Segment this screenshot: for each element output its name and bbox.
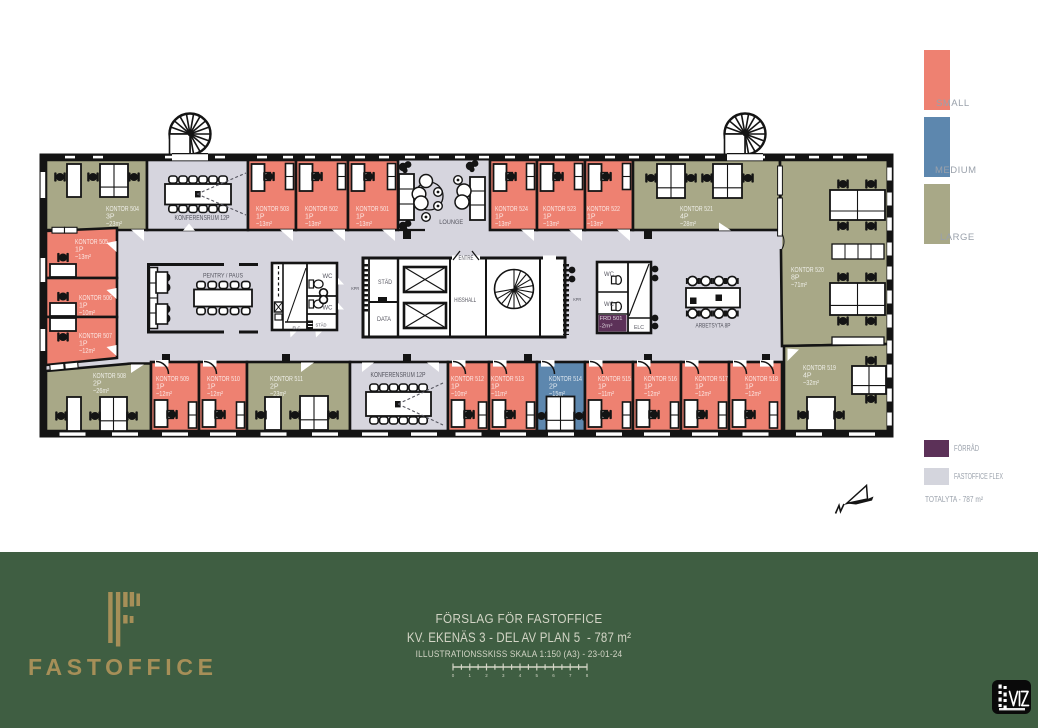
svg-text:~11m²: ~11m² <box>598 391 615 398</box>
svg-text:1P: 1P <box>156 384 165 391</box>
svg-text:KONTOR 517: KONTOR 517 <box>695 376 728 383</box>
svg-text:-2m²: -2m² <box>600 324 613 330</box>
svg-text:KONTOR 524: KONTOR 524 <box>495 206 528 213</box>
svg-text:LARGE: LARGE <box>940 232 975 243</box>
svg-text:KONTOR 512: KONTOR 512 <box>451 376 484 383</box>
svg-text:3: 3 <box>502 673 505 678</box>
svg-text:2P: 2P <box>270 384 279 391</box>
svg-text:~12m²: ~12m² <box>745 391 762 398</box>
svg-text:LOUNGE: LOUNGE <box>439 219 463 226</box>
svg-text:KONTOR 504: KONTOR 504 <box>106 206 139 213</box>
svg-text:~15m²: ~15m² <box>549 391 566 398</box>
svg-text:2: 2 <box>485 673 488 678</box>
svg-text:KONTOR 508: KONTOR 508 <box>93 373 126 380</box>
svg-text:KONTOR 507: KONTOR 507 <box>79 333 112 340</box>
svg-text:KONTOR 521: KONTOR 521 <box>680 206 713 213</box>
svg-text:KONFERENSRUM 12P: KONFERENSRUM 12P <box>175 215 230 222</box>
svg-text:STÄD: STÄD <box>378 279 393 286</box>
svg-text:KPR: KPR <box>351 286 359 292</box>
svg-text:KONTOR 510: KONTOR 510 <box>207 376 240 383</box>
svg-text:KONTOR 503: KONTOR 503 <box>256 206 289 213</box>
svg-text:ELC: ELC <box>634 325 644 331</box>
svg-text:1P: 1P <box>491 384 500 391</box>
svg-text:FRD 501: FRD 501 <box>600 316 623 322</box>
svg-text:~12m²: ~12m² <box>156 391 173 398</box>
svg-text:~12m²: ~12m² <box>207 391 224 398</box>
svg-text:WC: WC <box>604 302 615 308</box>
svg-text:1P: 1P <box>598 384 607 391</box>
svg-text:~12m²: ~12m² <box>79 348 96 355</box>
svg-text:0: 0 <box>452 673 455 678</box>
svg-text:KONTOR 523: KONTOR 523 <box>543 206 576 213</box>
svg-text:KONTOR 511: KONTOR 511 <box>270 376 303 383</box>
svg-text:TOTALYTA - 787 m²: TOTALYTA - 787 m² <box>925 495 983 504</box>
svg-text:KONTOR 513: KONTOR 513 <box>491 376 524 383</box>
svg-text:~23m²: ~23m² <box>106 221 123 228</box>
svg-text:1P: 1P <box>207 384 216 391</box>
svg-text:KONTOR 522: KONTOR 522 <box>587 206 620 213</box>
svg-text:~23m²: ~23m² <box>270 391 287 398</box>
svg-text:ARBETSYTA 8P: ARBETSYTA 8P <box>696 323 731 330</box>
svg-text:2P: 2P <box>549 384 558 391</box>
svg-text:8: 8 <box>586 673 589 678</box>
svg-text:~12m²: ~12m² <box>644 391 661 398</box>
svg-text:1P: 1P <box>356 214 365 221</box>
svg-text:PENTRY / PAUS: PENTRY / PAUS <box>203 273 243 280</box>
svg-text:1P: 1P <box>495 214 504 221</box>
svg-text:~11m²: ~11m² <box>491 391 508 398</box>
svg-text:~13m²: ~13m² <box>495 221 512 228</box>
svg-text:1P: 1P <box>543 214 552 221</box>
svg-text:WC: WC <box>323 306 334 312</box>
svg-text:WC: WC <box>604 272 615 278</box>
svg-text:KONTOR 509: KONTOR 509 <box>156 376 189 383</box>
svg-text:FASTOFFICE FLEX: FASTOFFICE FLEX <box>954 472 1003 481</box>
svg-text:FÖRRÅD: FÖRRÅD <box>954 444 979 453</box>
svg-text:1P: 1P <box>75 247 84 254</box>
svg-text:~71m²: ~71m² <box>791 282 808 289</box>
svg-text:~13m²: ~13m² <box>75 254 92 261</box>
svg-text:2P: 2P <box>93 381 102 388</box>
svg-text:SMALL: SMALL <box>936 98 970 109</box>
svg-text:1P: 1P <box>451 384 460 391</box>
svg-text:KONTOR 505: KONTOR 505 <box>75 239 108 246</box>
svg-text:6: 6 <box>552 673 555 678</box>
svg-text:1P: 1P <box>745 384 754 391</box>
svg-text:1P: 1P <box>79 303 88 310</box>
svg-text:~28m²: ~28m² <box>680 221 697 228</box>
svg-text:1P: 1P <box>644 384 653 391</box>
svg-text:~26m²: ~26m² <box>93 388 110 395</box>
svg-text:KONTOR 519: KONTOR 519 <box>803 365 836 372</box>
svg-text:KONTOR 520: KONTOR 520 <box>791 267 824 274</box>
svg-text:KONTOR 514: KONTOR 514 <box>549 376 582 383</box>
svg-text:~32m²: ~32m² <box>803 380 820 387</box>
svg-text:KONFERENSRUM 12P: KONFERENSRUM 12P <box>371 372 426 379</box>
svg-text:KONTOR 515: KONTOR 515 <box>598 376 631 383</box>
svg-text:1: 1 <box>469 673 472 678</box>
svg-text:KONTOR 501: KONTOR 501 <box>356 206 389 213</box>
svg-text:1P: 1P <box>79 341 88 348</box>
svg-text:4P: 4P <box>680 214 689 221</box>
svg-text:KONTOR 506: KONTOR 506 <box>79 295 112 302</box>
svg-text:KONTOR 518: KONTOR 518 <box>745 376 778 383</box>
svg-text:HISSHALL: HISSHALL <box>454 297 476 304</box>
svg-text:ELC: ELC <box>293 326 301 332</box>
svg-text:8P: 8P <box>791 275 800 282</box>
svg-text:ENTRÉ: ENTRÉ <box>459 253 474 262</box>
svg-text:1P: 1P <box>256 214 265 221</box>
svg-text:DATA: DATA <box>377 317 391 323</box>
svg-text:~13m²: ~13m² <box>305 221 322 228</box>
svg-text:KONTOR 502: KONTOR 502 <box>305 206 338 213</box>
svg-text:MEDIUM: MEDIUM <box>935 165 977 176</box>
svg-text:4: 4 <box>519 673 522 678</box>
svg-text:7: 7 <box>569 673 572 678</box>
svg-text:~13m²: ~13m² <box>543 221 560 228</box>
svg-text:~10m²: ~10m² <box>79 310 96 317</box>
svg-text:KONTOR 516: KONTOR 516 <box>644 376 677 383</box>
svg-text:~13m²: ~13m² <box>356 221 373 228</box>
svg-text:3P: 3P <box>106 214 115 221</box>
svg-text:KPR: KPR <box>573 297 581 303</box>
svg-text:1P: 1P <box>587 214 596 221</box>
svg-text:4P: 4P <box>803 373 812 380</box>
svg-text:1P: 1P <box>305 214 314 221</box>
svg-text:WC: WC <box>323 274 334 280</box>
svg-text:~10m²: ~10m² <box>451 391 468 398</box>
svg-text:~13m²: ~13m² <box>256 221 273 228</box>
svg-text:~13m²: ~13m² <box>587 221 604 228</box>
svg-text:STÄD: STÄD <box>316 322 327 329</box>
svg-text:5: 5 <box>536 673 539 678</box>
svg-text:1P: 1P <box>695 384 704 391</box>
svg-text:~12m²: ~12m² <box>695 391 712 398</box>
